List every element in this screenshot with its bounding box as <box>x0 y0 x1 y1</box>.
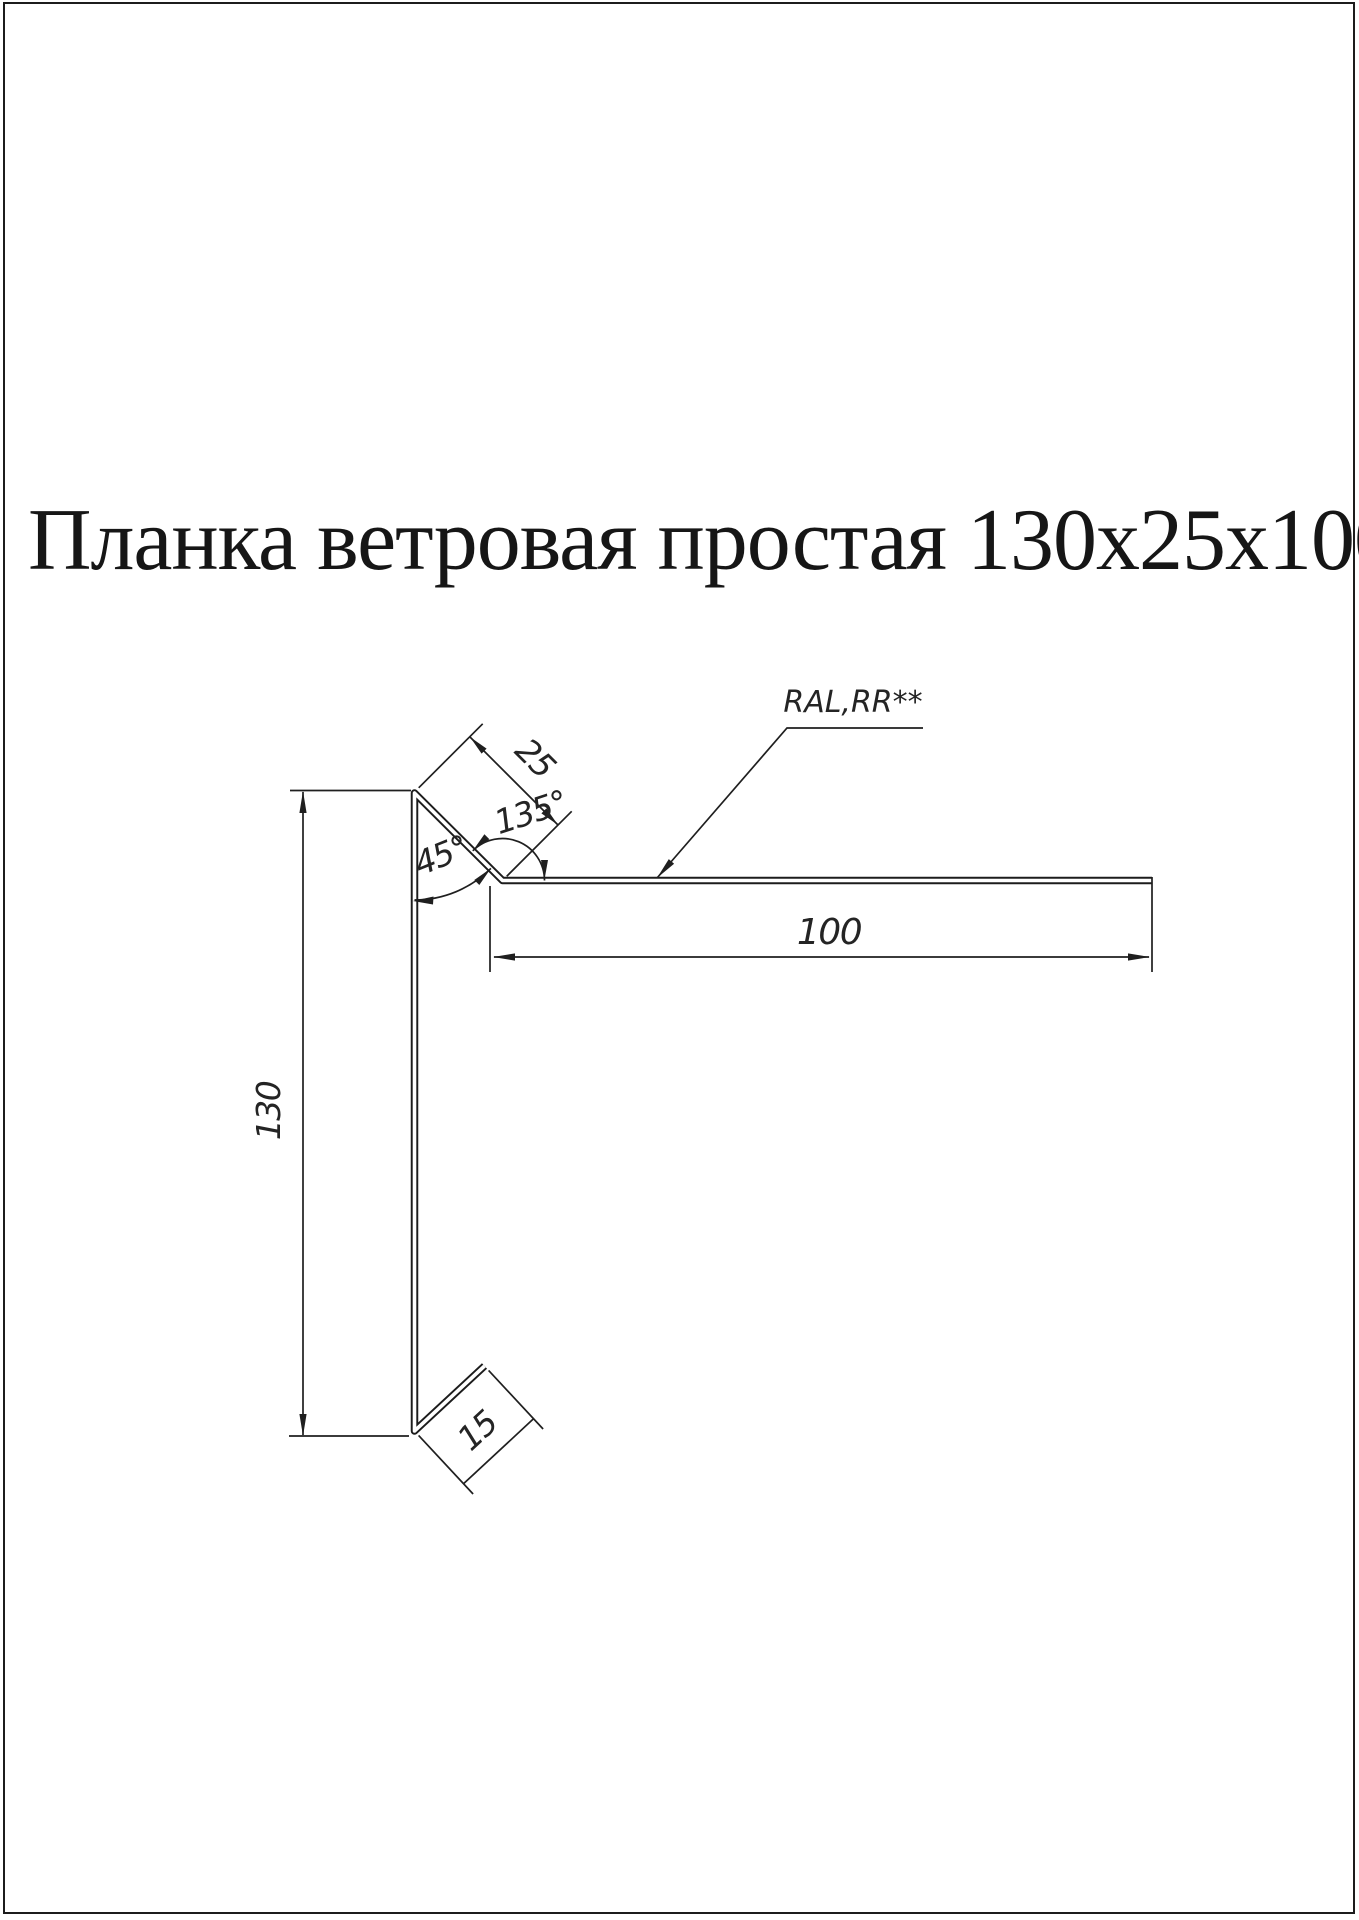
coating-label: RAL,RR** <box>783 685 922 720</box>
dim-15-ext-tip <box>489 1370 543 1429</box>
dim-15-label: 15 <box>450 1403 505 1458</box>
dim-45-arrow-flange <box>474 868 491 885</box>
dim-130-arrow-down <box>299 1414 306 1436</box>
dim-130-label: 130 <box>249 1081 288 1140</box>
dim-130: 130 <box>249 791 411 1437</box>
coating-leader-arrow <box>657 859 674 878</box>
profile-sheet-inner <box>415 793 1153 1431</box>
coating-leader-line <box>657 728 923 878</box>
dim-25-label: 25 <box>508 730 564 786</box>
dim-angle-45: 45° <box>408 827 491 904</box>
dim-100-arrow-right <box>1128 953 1150 960</box>
dim-25-ext-vertex <box>419 724 483 788</box>
coating-leader: RAL,RR** <box>657 685 923 878</box>
profile-outline <box>415 793 1153 1431</box>
drawing-canvas: 130 100 25 135° <box>0 0 1359 1920</box>
dim-130-arrow-up <box>299 791 306 813</box>
dim-135-arrow-horizontal <box>541 860 548 880</box>
dim-15: 15 <box>419 1370 543 1494</box>
dim-100: 100 <box>490 877 1152 972</box>
dim-135-label: 135° <box>489 782 571 842</box>
dim-100-arrow-left <box>493 953 515 960</box>
profile-sheet-outer <box>415 793 1153 1431</box>
dim-100-label: 100 <box>797 912 862 953</box>
drawing-page: Планка ветровая простая 130х25х100 130 1… <box>0 0 1359 1920</box>
dim-135-arrow-flange <box>473 834 490 851</box>
